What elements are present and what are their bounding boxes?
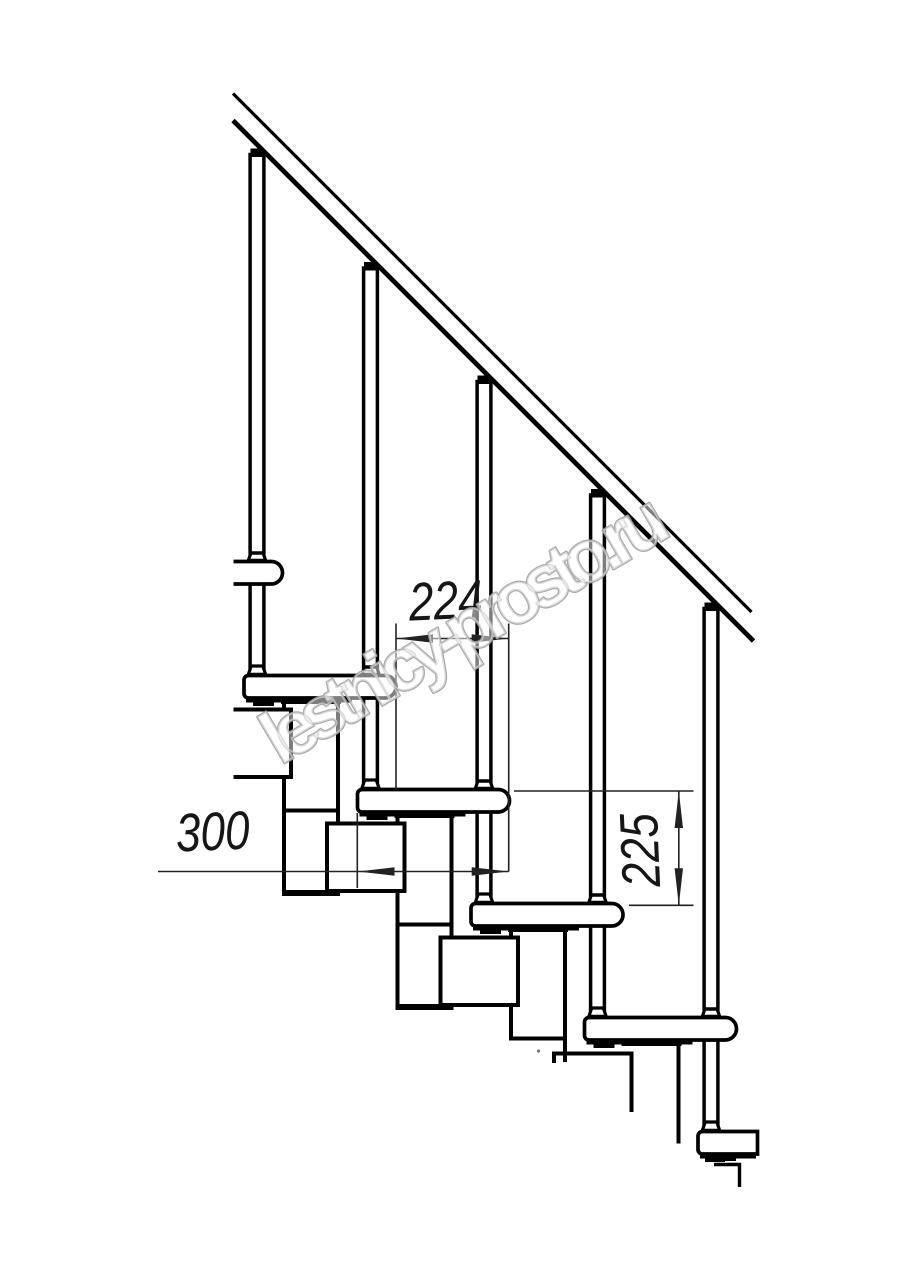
svg-text:225: 225: [609, 812, 672, 890]
svg-text:300: 300: [175, 800, 252, 863]
